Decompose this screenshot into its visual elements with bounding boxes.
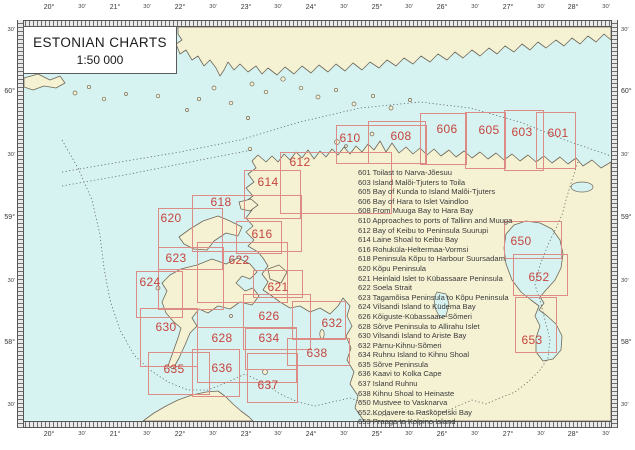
legend-item-635: 635 Sõrve Peninsula [358, 360, 512, 370]
longitude-tick-label: 25° [364, 4, 390, 11]
chart-number-636: 636 [212, 361, 233, 375]
chart-number-612: 612 [290, 155, 311, 169]
legend-item-636: 636 Kaavi to Kolka Cape [358, 369, 512, 379]
chart-number-628: 628 [212, 331, 233, 345]
longitude-tick-label: 30' [200, 4, 226, 10]
latitude-tick-label: 59° [621, 214, 635, 222]
legend-item-605: 605 Bay of Kunda to Island Malõi-Tjuters [358, 187, 512, 197]
longitude-tick-label: 30' [331, 431, 357, 437]
legend-item-621: 621 Heinlaid Islet to Kübassaare Peninsu… [358, 274, 512, 284]
chart-number-621: 621 [268, 280, 289, 294]
chart-box-603[interactable] [504, 110, 544, 171]
chart-legend: 601 Toilast to Narva-Jõesuu603 Island Ma… [358, 168, 512, 427]
latitude-tick-label: 58° [621, 339, 635, 347]
chart-number-601: 601 [548, 126, 569, 140]
legend-item-632: 632 Pärnu-Kihnu-Sõmeri [358, 341, 512, 351]
legend-item-618: 618 Peninsula Kõpu to Harbour Suursadam [358, 254, 512, 264]
latitude-tick-label: 30' [1, 26, 15, 34]
chart-number-618: 618 [211, 195, 232, 209]
chart-number-638: 638 [307, 346, 328, 360]
longitude-tick-label: 23° [233, 431, 259, 438]
longitude-tick-label: 28° [560, 431, 586, 438]
legend-item-637: 637 Island Ruhnu [358, 379, 512, 389]
chart-number-606: 606 [437, 122, 458, 136]
chart-number-632: 632 [322, 316, 343, 330]
latitude-tick-label: 30' [621, 401, 635, 409]
chart-number-650: 650 [511, 234, 532, 248]
longitude-tick-label: 30' [265, 431, 291, 437]
longitude-tick-label: 30' [462, 431, 488, 437]
chart-number-622: 622 [229, 253, 250, 267]
chart-number-630: 630 [156, 320, 177, 334]
longitude-tick-label: 30' [134, 431, 160, 437]
longitude-tick-label: 20° [36, 4, 62, 11]
longitude-tick-label: 21° [102, 431, 128, 438]
chart-number-608: 608 [391, 129, 412, 143]
longitude-tick-label: 30' [69, 4, 95, 10]
longitude-tick-label: 22° [167, 431, 193, 438]
latitude-tick-label: 30' [1, 151, 15, 159]
legend-item-608: 608 From Muuga Bay to Hara Bay [358, 206, 512, 216]
latitude-tick-label: 30' [621, 26, 635, 34]
longitude-tick-label: 28° [560, 4, 586, 11]
chart-number-624: 624 [140, 275, 161, 289]
chart-number-610: 610 [340, 131, 361, 145]
legend-item-614: 614 Laine Shoal to Keibu Bay [358, 235, 512, 245]
chart-number-603: 603 [512, 125, 533, 139]
legend-item-630: 630 Vilsandi Island to Ariste Bay [358, 331, 512, 341]
longitude-tick-label: 30' [462, 4, 488, 10]
legend-item-616: 616 Rohuküla-Heltermaa-Vormsi [358, 245, 512, 255]
map-border-bottom [17, 421, 618, 428]
longitude-tick-label: 30' [396, 431, 422, 437]
latitude-tick-label: 59° [1, 214, 15, 222]
chart-number-614: 614 [258, 175, 279, 189]
longitude-tick-label: 21° [102, 4, 128, 11]
legend-item-634: 634 Ruhnu Island to Kihnu Shoal [358, 350, 512, 360]
latitude-tick-label: 60° [1, 88, 15, 96]
chart-number-623: 623 [166, 251, 187, 265]
latitude-tick-label: 60° [621, 88, 635, 96]
latitude-tick-label: 30' [1, 277, 15, 285]
latitude-tick-label: 58° [1, 339, 15, 347]
latitude-tick-label: 30' [1, 401, 15, 409]
chart-number-637: 637 [258, 378, 279, 392]
map-border-left [17, 20, 24, 428]
legend-item-610: 610 Approaches to ports of Tallinn and M… [358, 216, 512, 226]
legend-item-650: 650 Mustvee to Vasknarva [358, 398, 512, 408]
legend-item-620: 620 Kõpu Peninsula [358, 264, 512, 274]
longitude-tick-label: 26° [429, 4, 455, 11]
longitude-tick-label: 30' [528, 431, 554, 437]
longitude-tick-label: 30' [69, 431, 95, 437]
longitude-tick-label: 22° [167, 4, 193, 11]
latitude-tick-label: 30' [621, 151, 635, 159]
legend-item-626: 626 Kõiguste-Kübassaare-Sõmeri [358, 312, 512, 322]
longitude-tick-label: 20° [36, 431, 62, 438]
chart-number-653: 653 [522, 333, 543, 347]
map-border-right [611, 20, 618, 428]
longitude-tick-label: 30' [396, 4, 422, 10]
chart-number-605: 605 [479, 123, 500, 137]
legend-item-606: 606 Bay of Hara to Islet Vaindloo [358, 197, 512, 207]
island-abruka [230, 315, 233, 318]
longitude-tick-label: 27° [495, 431, 521, 438]
longitude-tick-label: 27° [495, 4, 521, 11]
chart-number-634: 634 [259, 331, 280, 345]
longitude-tick-label: 30' [528, 4, 554, 10]
legend-item-622: 622 Soela Strait [358, 283, 512, 293]
longitude-tick-label: 30' [331, 4, 357, 10]
chart-number-635: 635 [164, 362, 185, 376]
legend-item-628: 628 Sõrve Peninsula to Allirahu Islet [358, 322, 512, 332]
legend-item-653: 653 Praaga to Kolpino Island [358, 417, 512, 427]
estonian-chart-index: 20°30'21°30'22°30'23°30'24°30'25°30'26°3… [0, 0, 635, 450]
longitude-tick-label: 25° [364, 431, 390, 438]
longitude-tick-label: 30' [200, 431, 226, 437]
chart-box-605[interactable] [465, 112, 506, 169]
latitude-tick-label: 30' [621, 277, 635, 285]
title-box: ESTONIAN CHARTS 1:50 000 [23, 26, 177, 74]
legend-item-603: 603 Island Malõi-Tjuters to Toila [358, 178, 512, 188]
chart-box-606[interactable] [420, 113, 467, 165]
longitude-tick-label: 24° [298, 4, 324, 11]
legend-item-623: 623 Tagamõisa Peninsula to Kõpu Peninsul… [358, 293, 512, 303]
legend-item-652: 652 Kodavere to Raskopelski Bay [358, 408, 512, 418]
chart-number-626: 626 [259, 309, 280, 323]
map-scale: 1:50 000 [24, 53, 176, 67]
longitude-tick-label: 23° [233, 4, 259, 11]
legend-item-601: 601 Toilast to Narva-Jõesuu [358, 168, 512, 178]
legend-item-624: 624 Vilsandi Island to Küdema Bay [358, 302, 512, 312]
longitude-tick-label: 30' [593, 431, 619, 437]
longitude-tick-label: 24° [298, 431, 324, 438]
map-title: ESTONIAN CHARTS [24, 35, 176, 50]
legend-item-612: 612 Bay of Keibu to Peninsula Suurupi [358, 226, 512, 236]
longitude-tick-label: 30' [265, 4, 291, 10]
longitude-tick-label: 30' [593, 4, 619, 10]
longitude-tick-label: 30' [134, 4, 160, 10]
legend-item-638: 638 Kihnu Shoal to Heinaste [358, 389, 512, 399]
lake-northeast [571, 182, 593, 192]
chart-number-620: 620 [161, 211, 182, 225]
longitude-tick-label: 26° [429, 431, 455, 438]
chart-number-616: 616 [252, 227, 273, 241]
chart-number-652: 652 [529, 270, 550, 284]
